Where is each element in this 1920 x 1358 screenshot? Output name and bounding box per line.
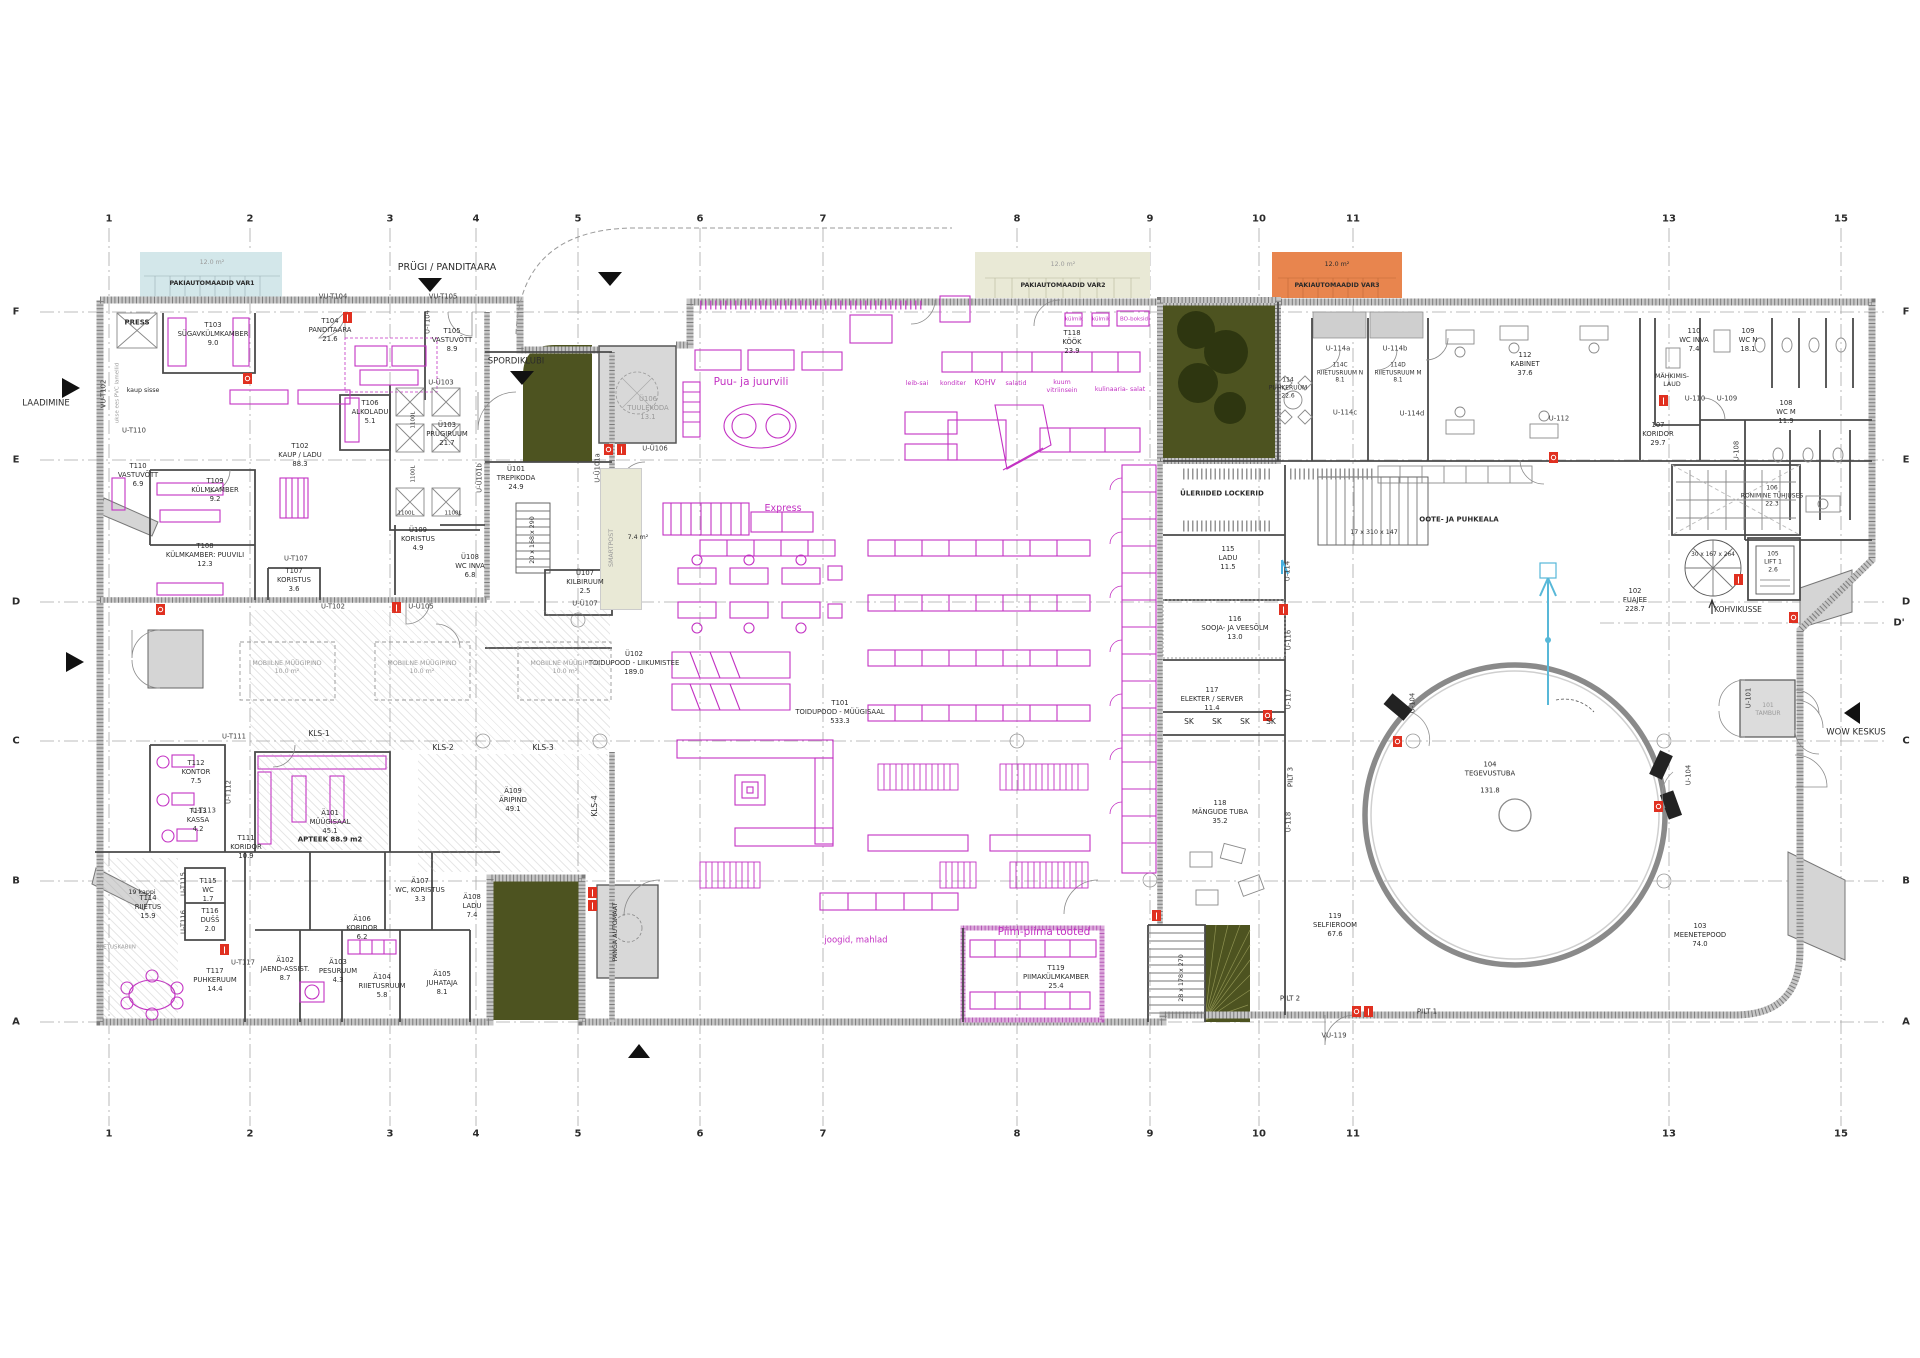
room-label-u102: Ü102 TOIDUPOOD - LIIKUMISTEE 189.0: [589, 650, 680, 676]
spordiklubi-label: SPORDIKLUBI: [488, 356, 545, 367]
grid-col-top: 5: [575, 213, 582, 226]
grid-col-bottom: 4: [473, 1128, 480, 1141]
mobiilne-label: MOBIILNE MÜÜGIPIND 10.0 m²: [530, 660, 599, 676]
room-label-t114: T114 RIIETUS 15.9: [135, 894, 161, 920]
door-label: U-T107: [284, 555, 308, 564]
grid-col-bottom: 11: [1346, 1128, 1360, 1141]
grid-row-right: C: [1902, 735, 1909, 748]
retail-label-joogid: joogid, mahlad: [824, 935, 887, 946]
door-label: U-T115: [180, 872, 189, 896]
room-label-a104: Ä104 RIIETUSRUUM 5.8: [358, 973, 405, 999]
retail-label-kylmik: külmik: [1092, 316, 1110, 323]
grid-col-top: 7: [820, 213, 827, 226]
grid-row-left: E: [13, 454, 20, 467]
apteek-label: APTEEK 88.9 m2: [298, 835, 363, 844]
arrow-south-entrance-icon: [628, 1044, 650, 1058]
pilt1-label: PILT 1: [1417, 1007, 1437, 1016]
grid-row-right-dprime: D': [1893, 617, 1904, 630]
grid-col-top: 6: [697, 213, 704, 226]
room-label-t111: T111 KORIDOR 10.9: [230, 834, 261, 860]
room-label-t118: T118 KÖÖK 23.9: [1062, 329, 1081, 355]
door-label: U-Ü107: [572, 600, 597, 609]
door-label: U-Ü105: [408, 603, 433, 612]
door-label: U-114d: [1400, 410, 1425, 419]
room-label-114d: 114D RIIETUSRUUM M 8.1: [1375, 363, 1422, 386]
room-label-t108: T108 KÜLMKAMBER: PUUVILI 12.3: [166, 542, 244, 568]
room-label-a105: Ä105 JUHATAJA 8.1: [426, 970, 457, 996]
shower-114c: [1313, 312, 1366, 338]
grid-row-right: F: [1903, 306, 1910, 319]
right-wing-furniture: [1183, 326, 1846, 905]
smartpost-area: 7.4 m²: [628, 534, 649, 542]
mobiilne-label: MOBIILNE MÜÜGIPIND 10.0 m²: [387, 660, 456, 676]
grid-col-top: 8: [1014, 213, 1021, 226]
room-label-109: 109 WC N 18.1: [1739, 327, 1758, 353]
panga-automaat-label: PANGA AUTOMAAT: [612, 903, 620, 962]
retail-label-konditer: konditer: [940, 380, 966, 388]
grid-col-bottom: 1: [106, 1128, 113, 1141]
arrow-north-entrance-icon: [598, 272, 622, 286]
door-label: U-118: [1285, 812, 1294, 832]
retail-label-kohv: KOHV: [974, 378, 995, 388]
retail-label-kulinaaria: kulinaaria- salat: [1095, 386, 1145, 394]
room-label-106: 106 RONIMINE TÜHJUSES 22.3: [1741, 484, 1803, 507]
pak2-area: 12.0 m²: [1051, 261, 1076, 269]
grid-col-top: 15: [1834, 213, 1848, 226]
bin-label: 1100L: [410, 465, 417, 482]
room-label-t101: T101 TOIDUPOOD - MÜÜGISAAL 533.3: [795, 699, 884, 725]
grid-row-left: B: [12, 875, 20, 888]
sk-box: SK: [1240, 717, 1250, 727]
loading-dock: [148, 630, 203, 688]
pak3-area: 12.0 m²: [1325, 261, 1350, 269]
pak1-area: 12.0 m²: [200, 259, 225, 267]
kls2-label: KLS-2: [432, 743, 453, 753]
door-label: U-T113: [192, 807, 216, 816]
grid-col-top: 13: [1662, 213, 1676, 226]
room-label-a103: Ä103 PESURUUM 4.3: [319, 958, 357, 984]
panga-automaat-room: [597, 885, 658, 978]
room-label-t107: T107 KORISTUS 3.6: [277, 567, 311, 593]
room-label-t117: T117 PUHKERUUM 14.4: [193, 967, 236, 993]
door-label: U-T102: [321, 603, 345, 612]
kls3-label: KLS-3: [532, 743, 553, 753]
pak2-label: PAKIAUTOMAADID VAR2: [1020, 282, 1105, 290]
mobiilne-label: MOBIILNE MÜÜGIPIND 10.0 m²: [252, 660, 321, 676]
room-label-117: 117 ELEKTER / SERVER 11.4: [1181, 686, 1244, 712]
arrow-wow-icon: [1844, 702, 1860, 724]
pakiautomaat-var3-zone: [1272, 252, 1402, 298]
room-label-107: 107 KORIDOR 29.7: [1642, 421, 1673, 447]
room-label-119: 119 SELFIEROOM 67.6: [1313, 912, 1357, 938]
door-label: U-T117: [231, 959, 255, 968]
door-label: U-114a: [1326, 345, 1351, 354]
retail-label-leib: leib-sai: [906, 380, 929, 388]
room-label-t109: T109 KÜLMKAMBER 9.2: [191, 477, 238, 503]
room-label-t102: T102 KAUP / LADU 88.3: [278, 442, 321, 468]
room-label-a101: Ä101 MÜÜGISAAL 45.1: [310, 809, 351, 835]
room-label-u109: Ü109 KORISTUS 4.9: [401, 526, 435, 552]
door-label: U-109: [1717, 395, 1737, 404]
arrow-prugi-icon: [418, 278, 442, 292]
door-label: U-110: [1685, 395, 1705, 404]
retail-label-bo: BO-boksid: [1120, 316, 1148, 323]
prugi-label: PRÜGI / PANDITAARA: [398, 262, 497, 274]
arrow-laadimine-icon: [62, 378, 80, 398]
grid-col-bottom: 3: [387, 1128, 394, 1141]
room-label-102: 102 FUAJEE 228.7: [1623, 587, 1647, 613]
grid-col-top: 11: [1346, 213, 1360, 226]
door-label: VU-119: [1321, 1032, 1346, 1041]
retail-label-piim: Piim-piima tooted: [998, 926, 1091, 940]
door-label: U-104: [1685, 765, 1694, 785]
laadimine-label: LAADIMINE: [22, 398, 69, 409]
kls4-label: KLS-4: [590, 795, 600, 816]
room-label-115: 115 LADU 11.5: [1219, 545, 1238, 571]
kls-floor-hatch: [250, 610, 610, 750]
room-label-a107: Ä107 WC, KORISTUS 3.3: [395, 877, 445, 903]
grid-row-left: D: [12, 596, 20, 609]
grid-row-left: F: [13, 306, 20, 319]
room-label-u106: Ü106 TUULEKODA 13.1: [627, 395, 668, 421]
room-label-101: 101 TAMBUR: [1755, 702, 1780, 718]
retail-label-kuum: kuum vitriinsein: [1047, 379, 1078, 395]
pvc-label: ukse ees PVC lamellid: [114, 363, 121, 423]
door-label: U-T116: [180, 910, 189, 934]
grid-row-right: D: [1902, 596, 1910, 609]
sk-box: SK: [1212, 717, 1222, 727]
room-label-108: 108 WC M 11.9: [1776, 399, 1796, 425]
door-label: VU-T104: [319, 293, 348, 302]
sk-box: SK: [1184, 717, 1194, 727]
grid-col-top: 3: [387, 213, 394, 226]
door-label: U-Ü101b: [476, 463, 485, 493]
grid-row-right: B: [1902, 875, 1910, 888]
smartpost-label: SMARTPOST: [608, 529, 616, 567]
door-label: VU-T105: [429, 293, 458, 302]
pilt3-label: PILT 3: [1286, 767, 1295, 787]
stair-dim-a: 20 x 168 x 290: [529, 516, 537, 564]
door-label: U-T110: [122, 427, 146, 436]
retail-label-puu: Puu- ja juurvili: [714, 376, 789, 390]
mahkimislaud-label: MÄHKIMIS- LAUD: [1655, 373, 1689, 389]
room-label-u108: Ü108 WC INVA 6.8: [455, 553, 485, 579]
door-label: U-Ü103: [428, 379, 453, 388]
room-label-103: 103 MEENETEPOOD 74.0: [1674, 922, 1726, 948]
door-label: U-Ü101a: [594, 453, 603, 483]
door-label: U-Ü106: [642, 445, 667, 454]
room-label-t105: T105 VASTUVÕTT 8.9: [432, 327, 472, 353]
pakiautomaat-var2-zone: [975, 252, 1150, 298]
room-label-a109: Ä109 ÄRIPIND 49.1: [499, 787, 527, 813]
room-label-t116: T116 DUŠŠ 2.0: [201, 907, 220, 933]
room-label-a106: Ä106 KORIDOR 6.2: [346, 915, 377, 941]
door-label: VU-T102: [100, 380, 109, 409]
room-label-u101: Ü101 TREPIKODA 24.9: [497, 465, 535, 491]
room-label-112: 112 KABINET 37.6: [1510, 351, 1539, 377]
pak3-label: PAKIAUTOMAADID VAR3: [1294, 282, 1379, 290]
grid-row-right: E: [1903, 454, 1910, 467]
grid-col-top: 2: [247, 213, 254, 226]
kappi-label: 19 kappi: [128, 889, 155, 897]
room-label-u103: Ü103 PRÜGIRUUM 21.7: [426, 421, 468, 447]
room-label-t106: T106 ALKOLADU 5.1: [352, 399, 389, 425]
retail-label-kylmik: külmik: [1065, 316, 1083, 323]
grid-col-top: 9: [1147, 213, 1154, 226]
door-label: U-114c: [1333, 409, 1357, 418]
grid-col-top: 1: [106, 213, 113, 226]
press-label: PRESS: [124, 318, 149, 327]
grid-col-bottom: 13: [1662, 1128, 1676, 1141]
amphitheatre-green: [1205, 925, 1250, 1022]
door-label: U-116: [1285, 630, 1294, 650]
grid-col-top: 10: [1252, 213, 1266, 226]
door-label: U-114: [1284, 561, 1293, 581]
grid-row-left: A: [12, 1016, 20, 1029]
oote-label: OOTE- JA PUHKEALA: [1419, 515, 1498, 524]
pilt2-label: PILT 2: [1280, 994, 1300, 1003]
room-label-116: 116 SOOJA- JA VEESÕLM 13.0: [1201, 615, 1268, 641]
retail-label-express: Express: [764, 503, 801, 515]
door-label: U-101: [1745, 688, 1754, 708]
room-label-110: 110 WC INVA 7.4: [1679, 327, 1709, 353]
door-label: U-114b: [1383, 345, 1408, 354]
stair-dim-c: 30 x 167 x 264: [1691, 552, 1735, 560]
room-label-t119: T119 PIIMAKÜLMKAMBER 25.4: [1023, 964, 1089, 990]
uleriided-label: ÜLERIIDED LOCKERID: [1180, 489, 1264, 498]
grid-col-bottom: 2: [247, 1128, 254, 1141]
grid-col-bottom: 6: [697, 1128, 704, 1141]
bin-label: 1100L: [410, 411, 417, 428]
door-label: U-104: [1409, 693, 1418, 713]
grid-col-bottom: 15: [1834, 1128, 1848, 1141]
shower-114d: [1370, 312, 1423, 338]
bin-label: 1100L: [444, 510, 461, 517]
room-label-105: 105 LIFT 1 2.6: [1764, 550, 1782, 573]
room-label-a108: Ä108 LADU 7.4: [463, 893, 482, 919]
room-label-a102: Ä102 JAEND-ASSIST. 8.7: [261, 956, 310, 982]
kohvikusse-label: KOHVIKUSSE: [1714, 605, 1762, 615]
arrow-west-icon: [66, 652, 84, 672]
room-label-t103: T103 SÜGAVKÜLMKAMBER 9.0: [178, 321, 249, 347]
grid-col-top: 4: [473, 213, 480, 226]
retail-label-salatid: salatid: [1006, 380, 1027, 388]
door-label: U-108: [1733, 441, 1742, 461]
door-label: U-T112: [225, 780, 234, 804]
kls1-label: KLS-1: [308, 729, 329, 739]
grid-col-bottom: 5: [575, 1128, 582, 1141]
planting-bed-south: [490, 880, 582, 1020]
room-label-114c: 114C RIIETUSRUUM N 8.1: [1317, 363, 1363, 386]
stair-dim-b: 17 x 310 x 147: [1350, 529, 1398, 537]
door-label: U-112: [1549, 415, 1569, 424]
grid-col-bottom: 7: [820, 1128, 827, 1141]
grid-col-bottom: 10: [1252, 1128, 1266, 1141]
room-label-t112: T112 KONTOR 7.5: [182, 759, 211, 785]
room-label-t110: T110 VASTUVÕTT 6.9: [118, 462, 158, 488]
riietuskabiin-label: RIIETUSKABIIN: [96, 944, 136, 951]
room-label-104: 104 TEGEVUSTUBA 131.8: [1465, 760, 1515, 795]
sk-box: SK: [1266, 717, 1276, 727]
stair-dim-d: 28 x 178 x 270: [1178, 954, 1186, 1002]
room-label-u107: Ü107 KILBIRUUM 2.5: [566, 569, 603, 595]
room-label-118: 118 MÄNGUDE TUBA 35.2: [1192, 799, 1248, 825]
door-label: U-117: [1285, 689, 1294, 709]
door-label: U-T104: [424, 310, 433, 334]
door-label: U-T111: [222, 733, 246, 742]
kaup-sisse-label: kaup sisse: [127, 387, 160, 395]
floor-plan: 1 2 3 4 5 6 7 8 9 10 11 13 15 1 2 3 4 5 …: [0, 0, 1920, 1358]
bin-label: 1100L: [397, 510, 414, 517]
grid-col-bottom: 8: [1014, 1128, 1021, 1141]
grid-row-left: C: [12, 735, 19, 748]
pak1-label: PAKIAUTOMAADID VAR1: [169, 280, 254, 288]
grid-row-right: A: [1902, 1016, 1910, 1029]
grid-col-bottom: 9: [1147, 1128, 1154, 1141]
wow-keskus-label: WOW KESKUS: [1826, 727, 1886, 738]
riietus-floor-hatch: [98, 858, 178, 1018]
room-label-114: 114 PUHKERUUM 22.6: [1269, 376, 1307, 399]
room-label-t115: T115 WC 1.7: [199, 877, 216, 903]
room-label-t104: T104 PANDITAARA 21.6: [309, 317, 352, 343]
